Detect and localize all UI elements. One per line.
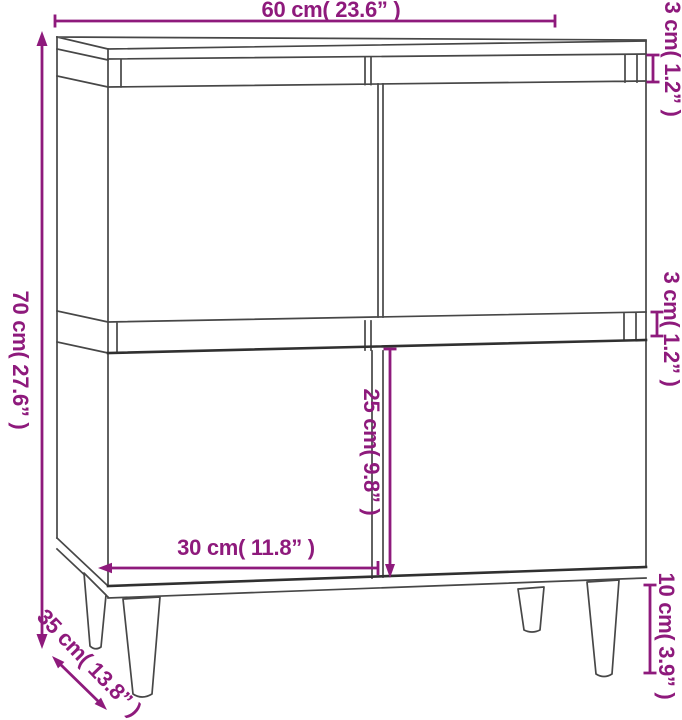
dim-label-height: 70 cm( 27.6” )	[9, 291, 31, 430]
left-panel-edges	[57, 37, 108, 586]
dim-label-leg-height: 10 cm( 3.9” )	[655, 573, 677, 700]
dimension-diagram: 60 cm( 23.6” ) 3 cm( 1.2” ) 70 cm( 27.6”…	[0, 0, 682, 720]
dim-label-top-thickness: 3 cm( 1.2” )	[661, 1, 682, 116]
cabinet-line-drawing	[0, 0, 682, 720]
dim-line-door-height	[384, 349, 397, 572]
leg-front-left	[123, 597, 160, 697]
cabinet-body	[57, 37, 646, 697]
middle-rail-bottom-edge	[108, 340, 646, 353]
legs	[84, 573, 619, 697]
leg-back-right	[518, 587, 544, 632]
dim-line-top-thickness	[647, 55, 660, 82]
leg-back-left	[84, 573, 106, 649]
upper-door-gap	[378, 84, 383, 317]
dim-arrow-height-top	[37, 31, 48, 46]
dim-label-shelf-thickness: 3 cm( 1.2” )	[660, 271, 682, 386]
dim-arrow-door-width	[98, 563, 112, 573]
top-slab	[57, 37, 646, 60]
leg-front-right	[587, 580, 619, 677]
top-rail	[57, 55, 646, 87]
dim-label-door-height: 25 cm( 9.8” )	[360, 389, 382, 516]
dim-line-door-width	[104, 561, 378, 575]
dim-label-width: 60 cm( 23.6” )	[262, 0, 401, 21]
dim-label-door-width: 30 cm( 11.8” )	[177, 537, 315, 559]
